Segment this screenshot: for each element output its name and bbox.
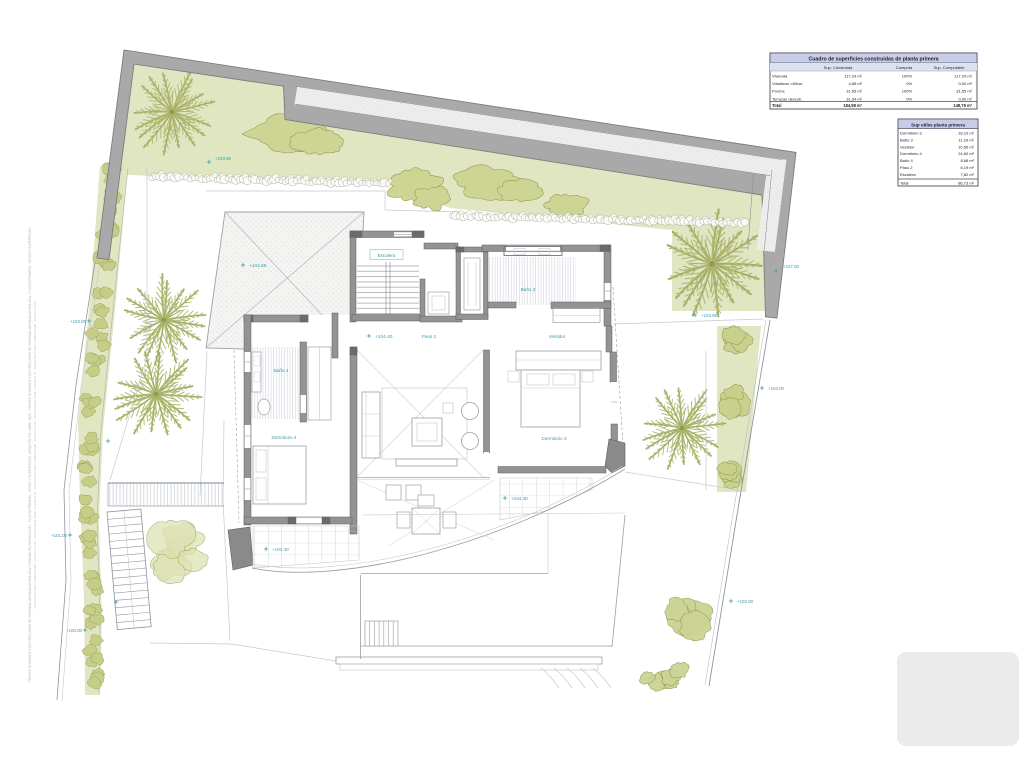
svg-text:86,73 m²: 86,73 m² [958, 181, 974, 186]
svg-text:+104.40: +104.40 [375, 334, 393, 340]
svg-text:Total: Total [900, 181, 909, 186]
svg-text:184,98 m²: 184,98 m² [843, 103, 862, 108]
svg-text:100%: 100% [902, 89, 913, 94]
svg-text:Escalera: Escalera [900, 172, 916, 177]
svg-text:+104.40: +104.40 [511, 496, 528, 501]
svg-text:Dormitorio 3: Dormitorio 3 [541, 436, 566, 441]
svg-text:148,79 m²: 148,79 m² [953, 103, 972, 108]
svg-text:0,00 m²: 0,00 m² [958, 81, 972, 86]
svg-text:Sup utiles planta primera: Sup utiles planta primera [911, 122, 965, 127]
svg-text:+100.00: +100.00 [66, 628, 83, 633]
svg-text:Cuadro de superficies construi: Cuadro de superficies construidas de pla… [808, 57, 938, 63]
svg-text:24,60 m²: 24,60 m² [958, 151, 974, 156]
svg-text:+103.00: +103.00 [70, 319, 87, 324]
svg-text:+103.95: +103.95 [701, 313, 718, 318]
svg-text:+103.95: +103.95 [215, 156, 232, 161]
svg-text:117,24 m²: 117,24 m² [954, 74, 972, 79]
svg-text:+102.00: +102.00 [737, 599, 754, 604]
svg-text:+104.40: +104.40 [272, 547, 289, 552]
svg-text:0%: 0% [906, 81, 912, 86]
svg-text:10,56 m²: 10,56 m² [958, 144, 974, 149]
svg-text:8,68 m²: 8,68 m² [960, 158, 974, 163]
svg-text:Dormitorio 4: Dormitorio 4 [900, 151, 923, 156]
svg-text:Terrazas descub.: Terrazas descub. [772, 96, 802, 101]
svg-text:31,34 m²: 31,34 m² [846, 96, 862, 101]
svg-text:11,29 m²: 11,29 m² [959, 137, 975, 142]
svg-text:0%: 0% [906, 96, 912, 101]
svg-text:Dormitorio 3: Dormitorio 3 [900, 131, 923, 136]
svg-text:Baño 3: Baño 3 [521, 287, 536, 292]
svg-text:31,55 m²: 31,55 m² [846, 89, 862, 94]
svg-text:Voladizos <60cm: Voladizos <60cm [772, 81, 803, 86]
svg-text:0,00 m²: 0,00 m² [958, 96, 972, 101]
svg-text:Paso 2: Paso 2 [422, 334, 437, 339]
svg-text:Vivienda: Vivienda [772, 74, 788, 79]
svg-text:117,24 m²: 117,24 m² [844, 74, 862, 79]
svg-text:PROYECTO BASICO Y DE EJECUCION: PROYECTO BASICO Y DE EJECUCION DE VIVIEN… [28, 228, 32, 683]
svg-text:4,85 m²: 4,85 m² [848, 81, 862, 86]
svg-text:+107.00: +107.00 [783, 264, 800, 269]
svg-text:31,55 m²: 31,55 m² [956, 89, 972, 94]
svg-text:Paso 2: Paso 2 [900, 165, 913, 170]
svg-text:18,19 m²: 18,19 m² [958, 131, 974, 136]
svg-text:100%: 100% [902, 74, 913, 79]
svg-text:Vestidor: Vestidor [549, 334, 566, 339]
svg-text:Porche: Porche [772, 89, 785, 94]
svg-text:Sup. Computable: Sup. Computable [934, 65, 966, 70]
svg-text:Baño 4: Baño 4 [900, 158, 913, 163]
svg-text:+104.55: +104.55 [249, 263, 267, 269]
svg-text:Vestidor: Vestidor [900, 144, 915, 149]
svg-text:7,82 m²: 7,82 m² [960, 172, 974, 177]
svg-text:6,19 m²: 6,19 m² [960, 165, 974, 170]
svg-text:Escalera: Escalera [378, 253, 396, 258]
svg-text:Total: Total [772, 103, 781, 108]
svg-text:Dormitorio 4: Dormitorio 4 [271, 435, 296, 440]
svg-text:Baño 3: Baño 3 [900, 137, 913, 142]
svg-text:ARQUITECTURA Y URBANISMO - ESC: ARQUITECTURA Y URBANISMO - ESCALA 1/100 … [33, 301, 37, 609]
svg-text:+104.00: +104.00 [768, 386, 785, 391]
svg-text:Computa: Computa [896, 65, 913, 70]
svg-text:+101.00: +101.00 [51, 533, 68, 538]
svg-text:Baño 4: Baño 4 [274, 368, 289, 373]
svg-text:Sup. Construida: Sup. Construida [824, 65, 853, 70]
